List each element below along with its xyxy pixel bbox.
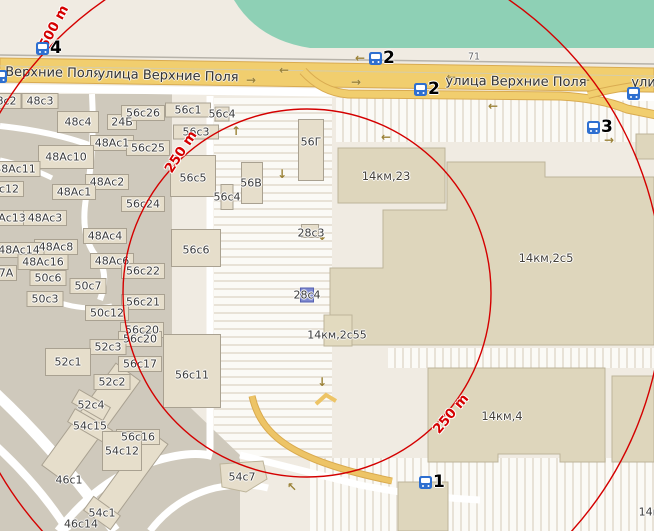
building-label: 56с1 (174, 104, 201, 117)
building-label: 48Ас16 (22, 256, 64, 269)
direction-arrow-icon: ← (355, 51, 365, 65)
building-label: 56с4 (208, 108, 235, 121)
building-label: 48с4 (64, 116, 91, 129)
building-label: 56с17 (123, 358, 157, 371)
building-label: 56В (240, 177, 262, 190)
building-label: 56с21 (126, 296, 160, 309)
bus-stop-number: 4 (50, 42, 62, 55)
direction-arrow-icon: ↓ (317, 375, 327, 389)
building-label: 46с14 (64, 518, 98, 531)
green-area (234, 0, 654, 48)
bus-stop-marker[interactable] (0, 70, 7, 83)
building-label: 7А (0, 267, 13, 280)
building (298, 119, 324, 181)
bus-stop-number: 1 (433, 476, 445, 489)
building-label: 56с20 (123, 333, 157, 346)
bus-stop-marker[interactable]: 2 (369, 52, 395, 65)
building-label: 54с7 (228, 471, 255, 484)
building-label: 52с4 (77, 399, 104, 412)
building-label: 56с26 (126, 107, 160, 120)
building (612, 376, 654, 462)
bus-icon[interactable] (36, 42, 49, 55)
building-label: 48Ас1 (95, 137, 130, 150)
building-label: 48Ас8 (39, 241, 74, 254)
bus-stop-marker[interactable]: 2 (414, 83, 440, 96)
turn-arrow-road (316, 395, 336, 404)
parking-access-road-casing (252, 396, 392, 481)
direction-arrow-icon: ← (488, 99, 498, 113)
building-label: 56с11 (175, 369, 209, 382)
building-label: 56с4 (213, 191, 240, 204)
building-label: 54с15 (73, 420, 107, 433)
building-label: 52с1 (54, 356, 81, 369)
direction-arrow-icon: → (246, 73, 256, 87)
building-label: 48Ас11 (0, 163, 36, 176)
street-name-label: а Верхние Поля (0, 65, 101, 82)
building-label: 28с4 (293, 289, 320, 302)
building-label: 48Ас3 (28, 212, 63, 225)
building-label: с12 (0, 183, 19, 196)
bus-icon[interactable] (0, 70, 7, 83)
direction-arrow-icon: ↖ (287, 480, 297, 494)
building-label: 46с1 (55, 474, 82, 487)
building-label: 48с2 (0, 95, 17, 108)
building-label: 50с6 (34, 272, 61, 285)
bus-icon[interactable] (587, 121, 600, 134)
direction-arrow-icon: ↓ (277, 167, 287, 181)
building-label: 54с12 (105, 445, 139, 458)
building-label: 48с3 (26, 95, 53, 108)
bus-stop-marker[interactable]: 4 (36, 42, 62, 55)
direction-arrow-icon: → (351, 75, 361, 89)
building-label: 56Г (301, 136, 322, 149)
building-label: 48Ас6 (95, 255, 130, 268)
bus-stop-marker[interactable]: 1 (419, 476, 445, 489)
building-label: 56с24 (126, 198, 160, 211)
building-label: 48Ас4 (88, 230, 123, 243)
bus-stop-marker[interactable]: 3 (587, 121, 613, 134)
building-label: 14км,23 (362, 169, 411, 183)
building-label: 14к (639, 506, 654, 519)
building-label: 50с12 (90, 307, 124, 320)
direction-arrow-icon: ↑ (231, 124, 241, 138)
bus-stop-marker[interactable] (627, 87, 640, 100)
road-ref-label: 71 (468, 52, 480, 63)
bus-stop-number: 3 (601, 121, 613, 134)
building-label: 50с3 (31, 293, 58, 306)
building-label: 52с3 (94, 341, 121, 354)
building-label: 56с6 (182, 244, 209, 257)
bus-stop-number: 2 (428, 83, 440, 96)
building-label: 14км,2с55 (307, 329, 366, 342)
building-label: 28с3 (297, 227, 324, 240)
bus-icon[interactable] (414, 83, 427, 96)
building (636, 134, 654, 159)
bus-icon[interactable] (627, 87, 640, 100)
direction-arrow-icon: ← (381, 130, 391, 144)
building-label: 14км,4 (481, 409, 522, 423)
building-label: 14км,2с5 (519, 251, 574, 265)
building-label: 48Ас1 (57, 186, 92, 199)
building-label: 48Ас2 (90, 176, 125, 189)
building-label: 48Ас10 (45, 151, 87, 164)
bus-icon[interactable] (419, 476, 432, 489)
direction-arrow-icon: ← (279, 63, 289, 77)
building-label: 52с2 (98, 376, 125, 389)
building-label: 56с22 (126, 265, 160, 278)
street-name-label: улица Верхние Поля (445, 74, 586, 90)
bus-icon[interactable] (369, 52, 382, 65)
building-label: 50с7 (74, 280, 101, 293)
building-label: 56с16 (121, 431, 155, 444)
bus-stop-number: 2 (383, 52, 395, 65)
building-label: Ас13 (0, 212, 26, 225)
building-label: 56с5 (179, 172, 206, 185)
map-canvas[interactable]: 48с248с348с424Б56с2656с156с456с348Ас156с… (0, 0, 654, 531)
building-label: 56с25 (131, 142, 165, 155)
